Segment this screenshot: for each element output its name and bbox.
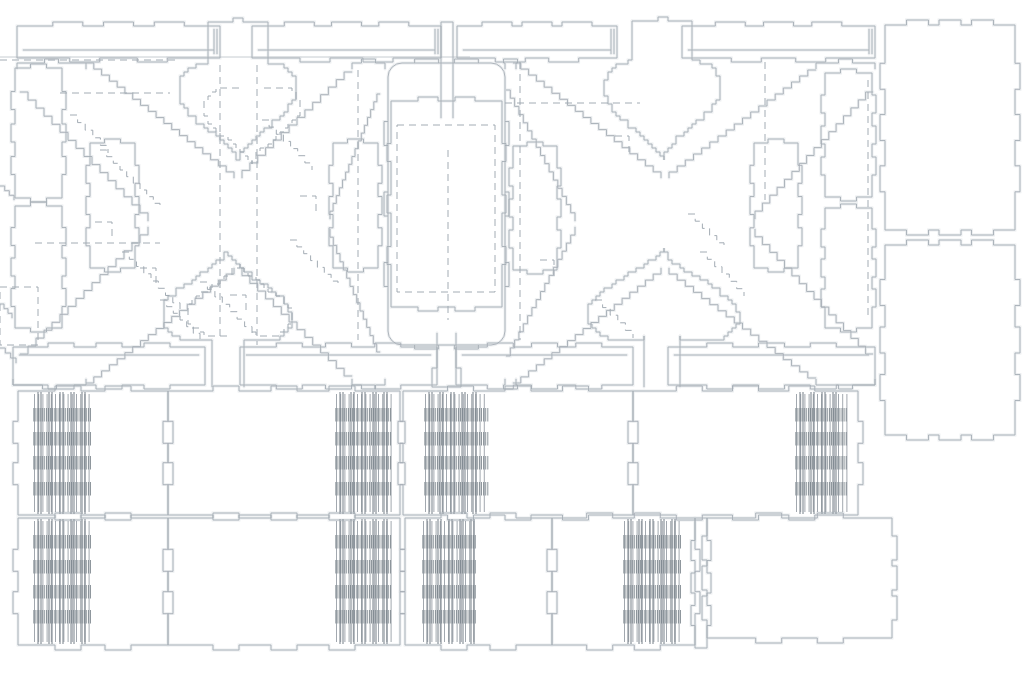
bottom-rail-4 [668,343,875,389]
hinge-panel-r2-1 [13,513,173,650]
side-panel-top [880,20,1020,235]
heart-cutout-left [180,18,296,160]
slat-upright-b [11,202,66,332]
top-strip-3 [457,22,617,62]
hinge-panel-r2-2 [163,513,405,650]
top-strip-4 [682,22,875,62]
spade-cutout-right [588,248,740,387]
bottom-rail-2 [240,343,437,389]
top-strip-1 [17,22,220,62]
hinge-panel-r1-1 [13,386,173,520]
heart-cutout-right [604,17,720,160]
side-panel-bottom [880,240,1020,440]
hinge-panel-r1-4 [628,386,863,520]
hinge-panel-r1-2 [163,386,405,520]
top-strip-2 [252,22,441,62]
slat-upright-e [509,142,561,274]
spade-cutout-left [164,252,292,387]
seat-panel [384,22,509,387]
drawing-viewport [0,0,1024,675]
slat-upright-a [11,64,66,202]
hinge-panel-r2-4 [547,513,700,650]
plain-panel [702,513,897,643]
lasercut-layout-canvas [0,0,1024,675]
